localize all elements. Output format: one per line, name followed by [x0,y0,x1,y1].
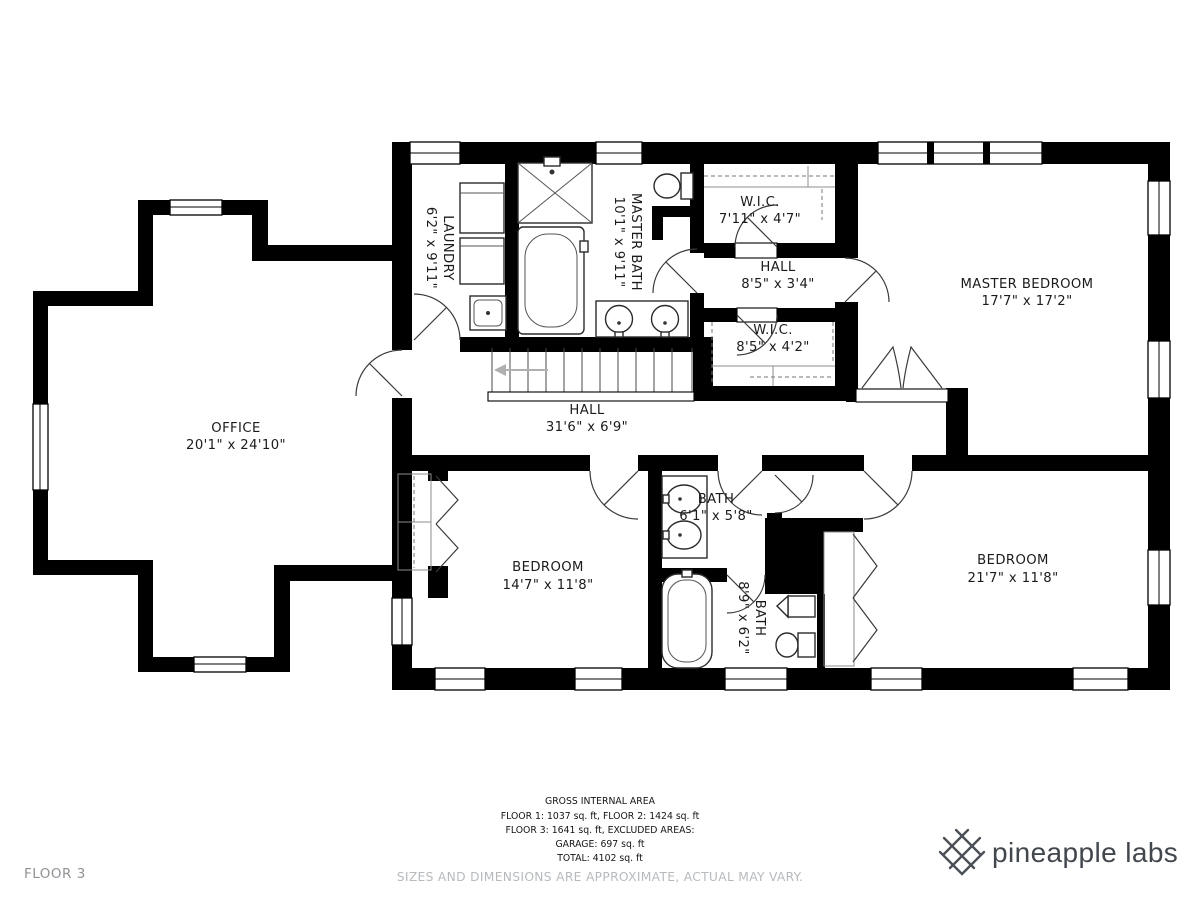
room-label-master-bath: MASTER BATH 10'1" x 9'11" [611,193,643,291]
brand-logo: pineapple labs [940,830,1178,874]
floor-label: FLOOR 3 [24,866,86,882]
svg-text:BEDROOM: BEDROOM [512,560,584,575]
svg-text:8'5" x 3'4": 8'5" x 3'4" [741,277,815,292]
footer: GROSS INTERNAL AREA FLOOR 1: 1037 sq. ft… [24,796,803,884]
brand-name: pineapple labs [992,837,1178,868]
svg-text:20'1" x 24'10": 20'1" x 24'10" [186,438,286,453]
room-label-master-bedroom: MASTER BEDROOM 17'7" x 17'2" [961,277,1094,309]
room-label-laundry: LAUNDRY 6'2" x 9'11" [423,207,455,289]
room-label-office: OFFICE 20'1" x 24'10" [186,421,286,453]
area-title: GROSS INTERNAL AREA [545,796,656,807]
room-label-hall-small: HALL 8'5" x 3'4" [741,260,815,292]
staircase [488,348,694,401]
svg-text:MASTER BATH: MASTER BATH [628,193,643,291]
master-bath-fixtures [518,157,695,337]
room-label-bedroom-right: BEDROOM 21'7" x 11'8" [967,553,1058,586]
svg-text:7'11" x 4'7": 7'11" x 4'7" [719,212,801,227]
bedroom-right-closet [824,532,877,666]
svg-text:14'7" x 11'8": 14'7" x 11'8" [502,578,593,593]
laundry-fixtures [460,183,506,330]
svg-text:BATH: BATH [698,492,735,507]
svg-text:HALL: HALL [760,260,795,275]
svg-text:8'9" x 6'2": 8'9" x 6'2" [735,581,750,655]
svg-text:8'5" x 4'2": 8'5" x 4'2" [736,340,810,355]
svg-text:W.I.C.: W.I.C. [753,323,793,338]
area-line-4: TOTAL: 4102 sq. ft [556,853,643,864]
svg-text:6'2" x 9'11": 6'2" x 9'11" [423,207,438,289]
room-label-bath-lower: BATH 8'9" x 6'2" [735,581,767,655]
svg-text:BATH: BATH [752,600,767,637]
area-line-2: FLOOR 3: 1641 sq. ft, EXCLUDED AREAS: [506,825,695,836]
svg-text:OFFICE: OFFICE [211,421,260,436]
room-label-hall-main: HALL 31'6" x 6'9" [546,403,628,435]
svg-text:HALL: HALL [569,403,604,418]
svg-text:MASTER BEDROOM: MASTER BEDROOM [961,277,1094,292]
room-label-wic-bottom: W.I.C. 8'5" x 4'2" [736,323,810,355]
svg-text:W.I.C.: W.I.C. [740,195,780,210]
disclaimer-text: SIZES AND DIMENSIONS ARE APPROXIMATE, AC… [397,870,803,884]
area-line-3: GARAGE: 697 sq. ft [555,839,644,850]
floorplan-svg: OFFICE 20'1" x 24'10" LAUNDRY 6'2" x 9'1… [0,0,1200,900]
svg-text:21'7" x 11'8": 21'7" x 11'8" [967,571,1058,586]
svg-text:17'7" x 17'2": 17'7" x 17'2" [981,294,1072,309]
floorplan-page: OFFICE 20'1" x 24'10" LAUNDRY 6'2" x 9'1… [0,0,1200,900]
svg-text:10'1" x 9'11": 10'1" x 9'11" [611,196,626,287]
room-label-wic-top: W.I.C. 7'11" x 4'7" [719,195,801,227]
svg-text:31'6" x 6'9": 31'6" x 6'9" [546,420,628,435]
svg-text:6'1" x 5'8": 6'1" x 5'8" [679,509,753,524]
stair-direction-arrow [494,364,506,376]
room-label-bedroom-left: BEDROOM 14'7" x 11'8" [502,560,593,593]
area-line-1: FLOOR 1: 1037 sq. ft, FLOOR 2: 1424 sq. … [501,811,700,822]
svg-text:LAUNDRY: LAUNDRY [440,215,455,281]
pineapple-labs-icon [940,830,984,874]
svg-text:BEDROOM: BEDROOM [977,553,1049,568]
